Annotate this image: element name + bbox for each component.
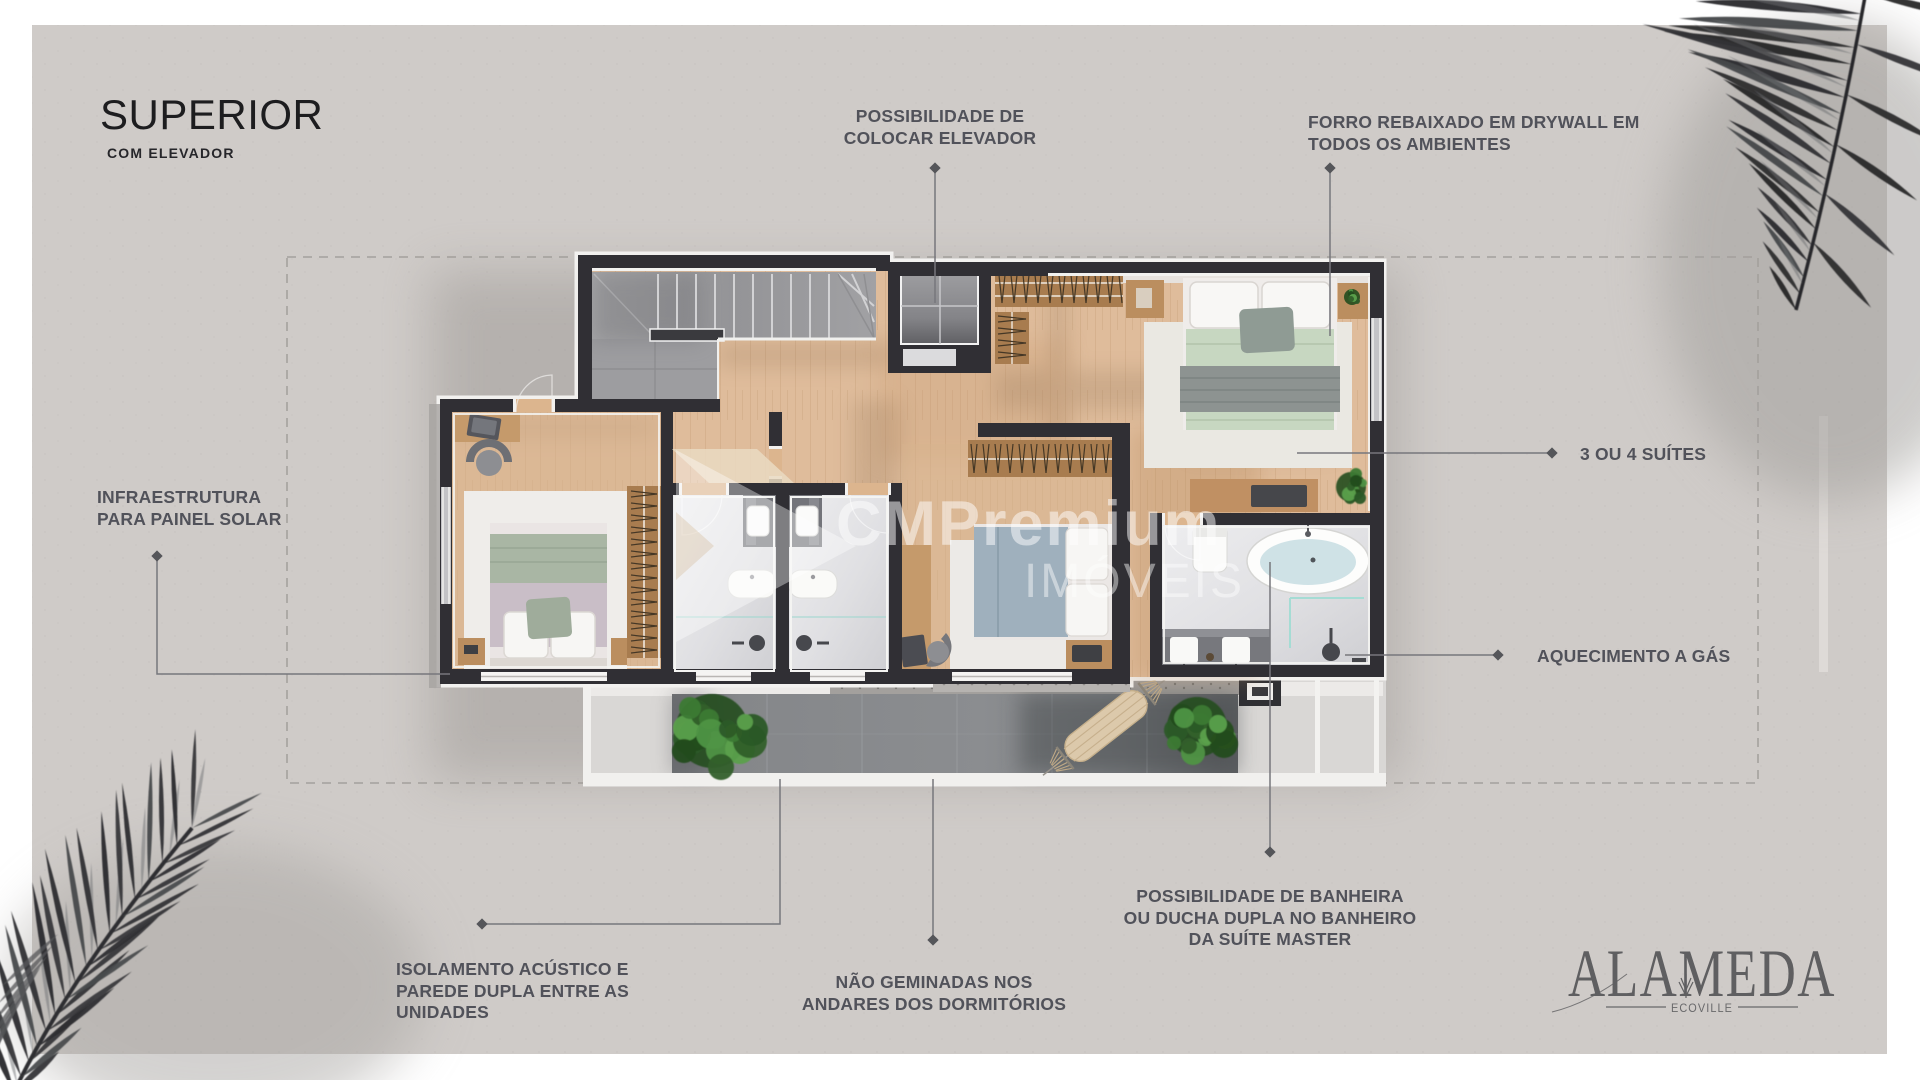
svg-text:ALAMEDA: ALAMEDA — [1568, 935, 1836, 1011]
svg-text:CMPremium: CMPremium — [836, 489, 1222, 559]
svg-text:ECOVILLE: ECOVILLE — [1671, 1001, 1733, 1015]
svg-text:IMÓVEIS: IMÓVEIS — [1024, 554, 1245, 608]
